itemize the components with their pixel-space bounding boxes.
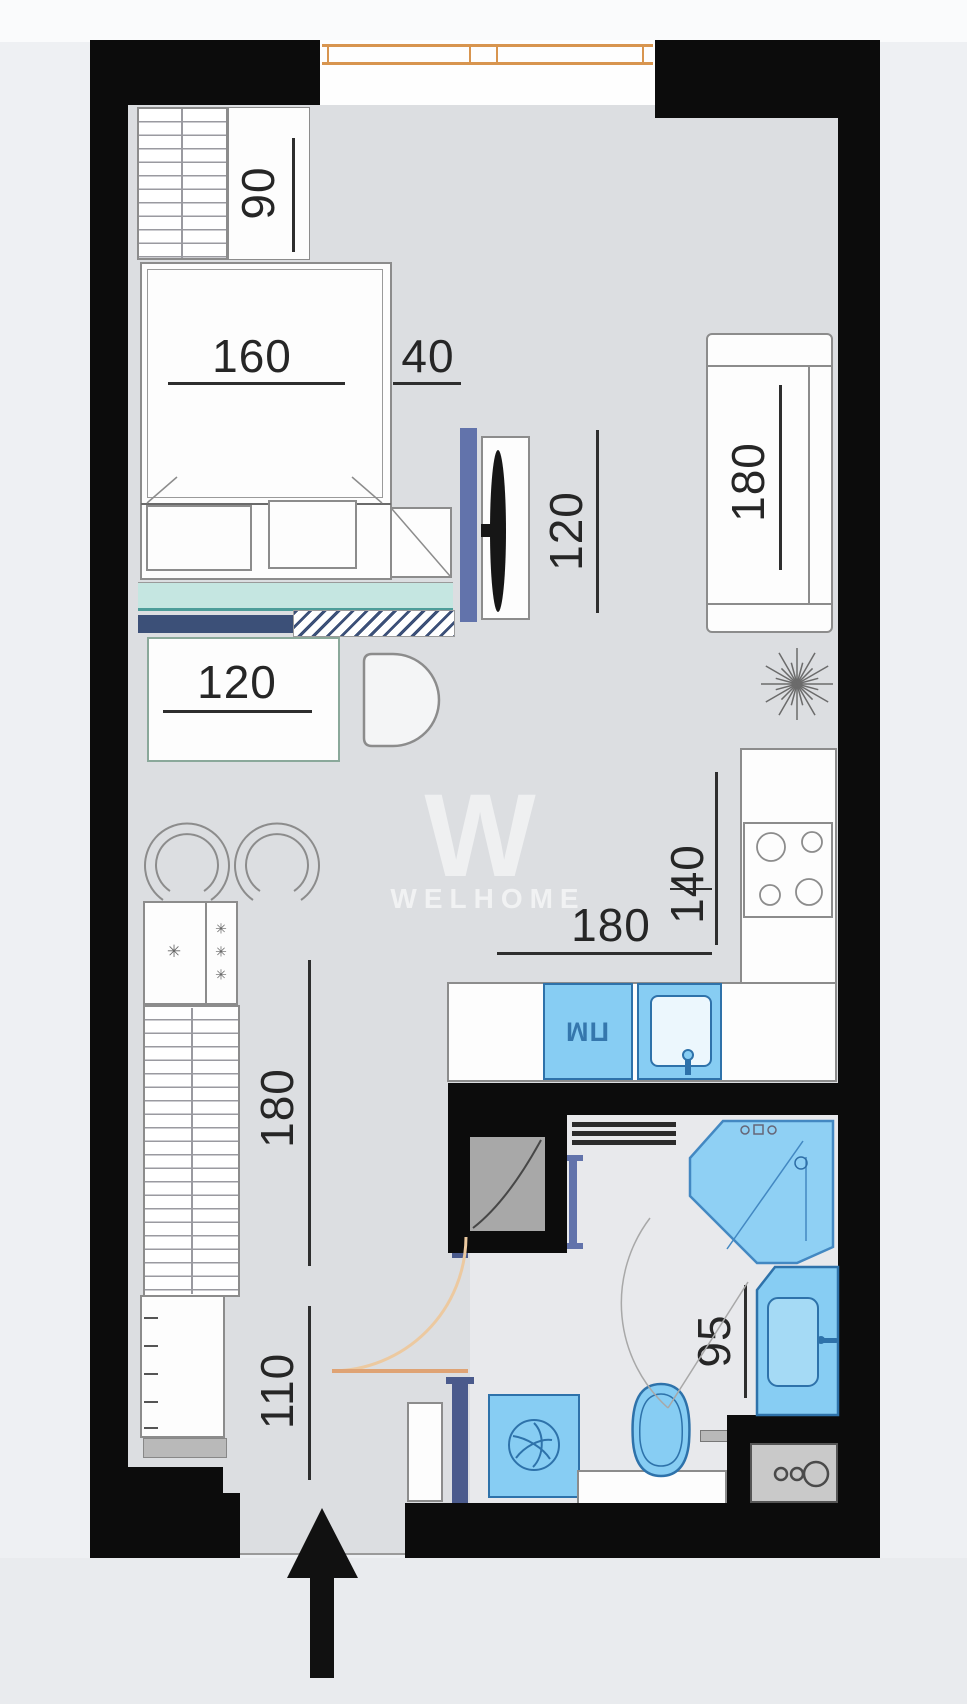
toilet-icon (633, 1384, 690, 1476)
entry-shelf-hooks (144, 1318, 158, 1428)
stove-burners (757, 832, 822, 905)
nightstand-diagonal (392, 509, 450, 576)
kitchen-faucet-icon (683, 1050, 693, 1075)
shower (690, 1121, 833, 1263)
entrance-arrow-icon (287, 1508, 358, 1678)
tv-icon (481, 450, 506, 612)
shaft-duct-curve (473, 1140, 541, 1228)
floorplan-page: { "watermark": { "logo_letter": "W", "br… (0, 0, 967, 1704)
meter-box-icon (775, 1462, 828, 1486)
overlay-graphics (0, 0, 967, 1704)
washer-drum-icon (509, 1420, 559, 1470)
bath-sink-basin (768, 1298, 818, 1386)
chair-icons (145, 824, 319, 900)
sofa-lines (707, 366, 832, 604)
bed-fold-marks (147, 477, 382, 503)
bathroom-entrance-door (332, 1237, 468, 1371)
window-mullion-ticks (328, 45, 643, 64)
bath-vanity (757, 1267, 838, 1415)
armchair-icon (364, 654, 439, 746)
plant-icon (761, 648, 833, 720)
